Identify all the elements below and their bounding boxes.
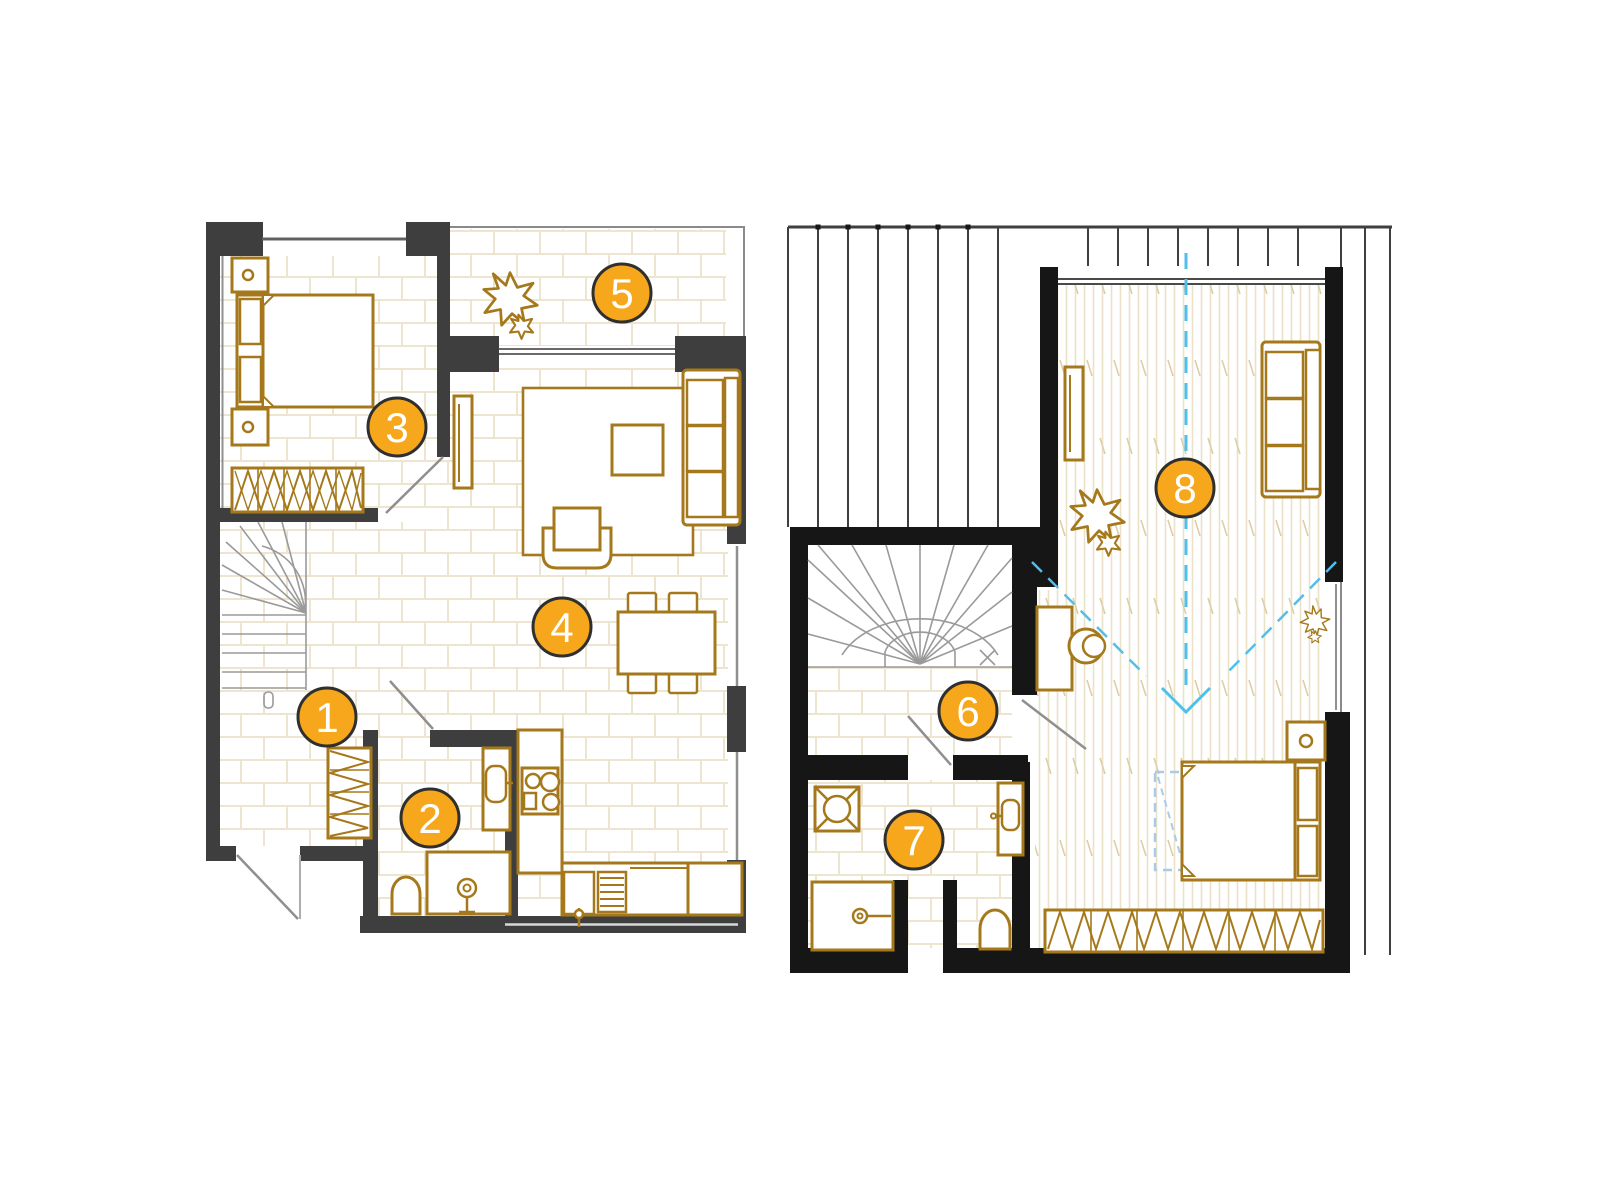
- toilet-icon: [980, 910, 1010, 949]
- sofa-icon: [1262, 342, 1320, 497]
- marker-2-label: 2: [418, 795, 441, 842]
- marker-1-label: 1: [315, 694, 338, 741]
- marker-3[interactable]: 3: [368, 398, 426, 456]
- shower-tray-icon: [812, 882, 893, 950]
- marker-5[interactable]: 5: [593, 264, 651, 322]
- pillow-icon: [1298, 768, 1317, 820]
- marker-4[interactable]: 4: [533, 598, 591, 656]
- pillow-icon: [240, 299, 261, 344]
- marker-8-label: 8: [1173, 465, 1196, 512]
- chair-icon: [669, 593, 697, 612]
- marker-5-label: 5: [610, 270, 633, 317]
- marker-7[interactable]: 7: [885, 811, 943, 869]
- floor-plan-page: 1 2 3 4 5 6 7 8: [0, 0, 1600, 1200]
- chair-icon: [628, 593, 656, 612]
- lamp-icon: [243, 422, 253, 432]
- floor-plan-level-2: [788, 225, 1392, 974]
- washing-machine-icon: [815, 787, 859, 831]
- wardrobe-icon: [1045, 910, 1323, 952]
- pillow-icon: [1298, 826, 1317, 876]
- marker-6[interactable]: 6: [939, 682, 997, 740]
- sink-basin-icon: [1002, 800, 1019, 830]
- sink-basin-icon: [486, 766, 506, 802]
- tv-sideboard-icon: [454, 396, 472, 488]
- door-entry: [237, 855, 298, 919]
- marker-1[interactable]: 1: [298, 688, 356, 746]
- dishwasher-icon: [598, 872, 626, 912]
- stove-icon: [522, 768, 559, 814]
- chair-icon: [628, 674, 656, 693]
- lamp-icon: [243, 270, 253, 280]
- marker-8[interactable]: 8: [1156, 459, 1214, 517]
- sofa-icon: [683, 370, 740, 525]
- armchair-icon: [543, 508, 611, 568]
- marker-7-label: 7: [902, 817, 925, 864]
- wardrobe-icon: [232, 468, 363, 512]
- marker-2[interactable]: 2: [401, 789, 459, 847]
- dining-table-icon: [618, 612, 715, 674]
- stairs-level-2: [808, 545, 1012, 667]
- toilet-icon: [392, 877, 420, 914]
- marker-6-label: 6: [956, 688, 979, 735]
- marker-4-label: 4: [550, 604, 573, 651]
- fridge-icon: [688, 863, 742, 915]
- floor-plan-level-1: [206, 222, 746, 933]
- wardrobe-icon: [328, 748, 371, 838]
- pillow-icon: [240, 357, 261, 402]
- coffee-table-icon: [612, 425, 663, 475]
- marker-3-label: 3: [385, 404, 408, 451]
- lamp-icon: [1300, 735, 1312, 747]
- chair-icon: [669, 674, 697, 693]
- shelf-icon: [1065, 367, 1083, 460]
